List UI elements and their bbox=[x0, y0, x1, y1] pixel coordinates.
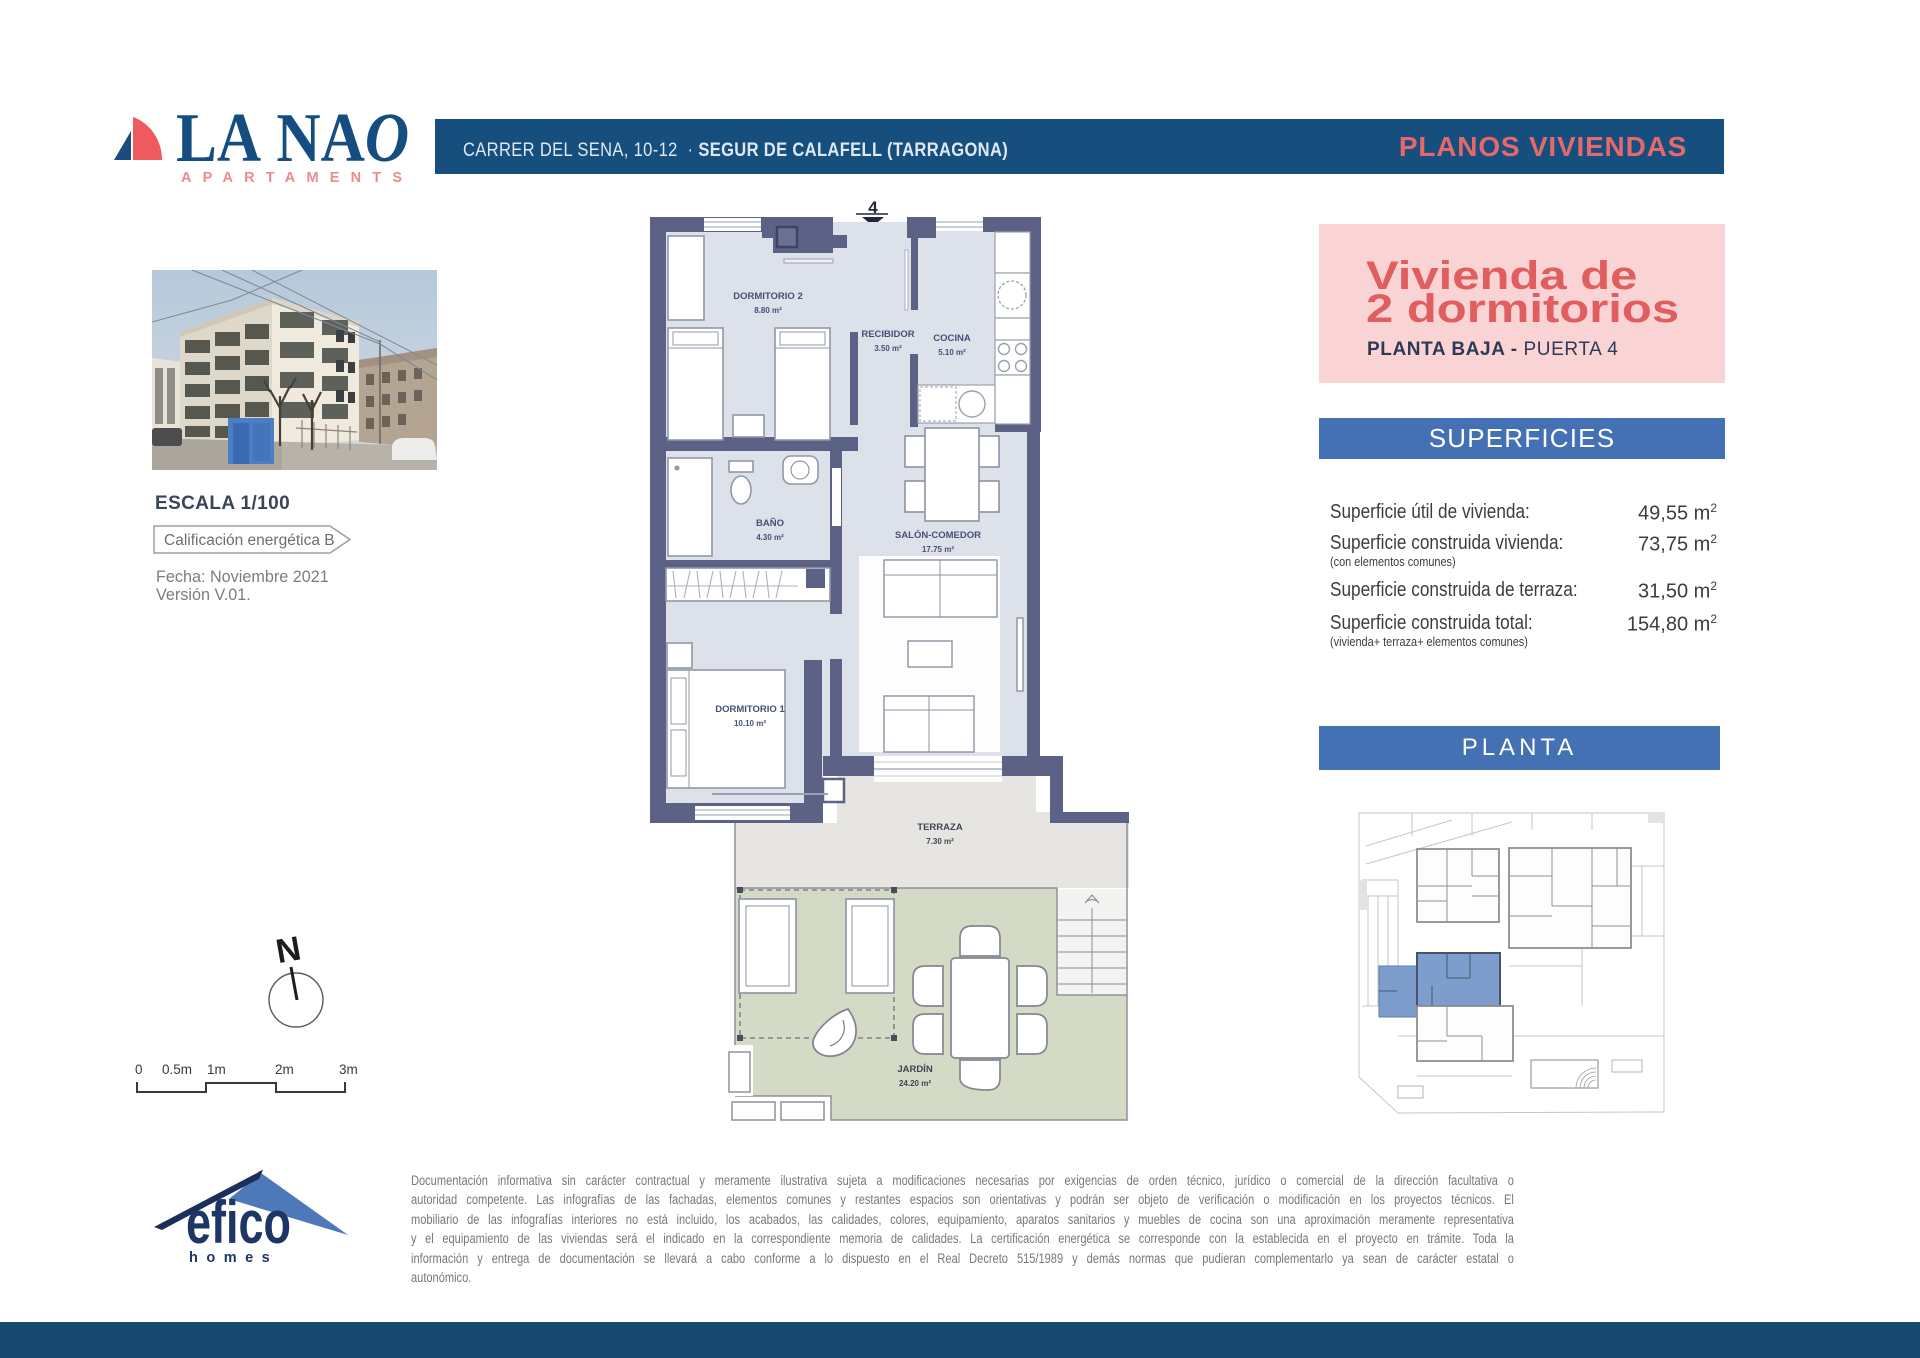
svg-text:efico: efico bbox=[186, 1190, 291, 1257]
svg-text:4.30 m²: 4.30 m² bbox=[756, 533, 784, 542]
svg-text:3.50 m²: 3.50 m² bbox=[874, 344, 902, 353]
svg-text:TERRAZA: TERRAZA bbox=[917, 822, 963, 833]
svg-text:DORMITORIO 2: DORMITORIO 2 bbox=[733, 291, 803, 302]
svg-text:5.10 m²: 5.10 m² bbox=[938, 348, 966, 357]
svg-text:COCINA: COCINA bbox=[933, 333, 971, 344]
svg-text:JARDÍN: JARDÍN bbox=[897, 1064, 933, 1075]
svg-text:17.75 m²: 17.75 m² bbox=[922, 545, 954, 554]
svg-text:8.80 m²: 8.80 m² bbox=[754, 306, 782, 315]
svg-text:2m: 2m bbox=[275, 1062, 294, 1077]
svg-text:N: N bbox=[273, 929, 304, 971]
svg-text:homes: homes bbox=[189, 1250, 278, 1266]
svg-text:BAÑO: BAÑO bbox=[756, 518, 784, 529]
svg-text:3m: 3m bbox=[339, 1062, 358, 1077]
svg-text:0: 0 bbox=[135, 1062, 143, 1077]
svg-text:7.30 m²: 7.30 m² bbox=[926, 837, 954, 846]
svg-text:24.20 m²: 24.20 m² bbox=[899, 1079, 931, 1088]
svg-text:SALÓN-COMEDOR: SALÓN-COMEDOR bbox=[895, 529, 981, 541]
svg-text:RECIBIDOR: RECIBIDOR bbox=[861, 329, 914, 340]
svg-text:10.10 m²: 10.10 m² bbox=[734, 719, 766, 728]
svg-text:1m: 1m bbox=[207, 1062, 226, 1077]
svg-text:0.5m: 0.5m bbox=[162, 1062, 192, 1077]
svg-text:DORMITORIO 1: DORMITORIO 1 bbox=[715, 704, 785, 715]
